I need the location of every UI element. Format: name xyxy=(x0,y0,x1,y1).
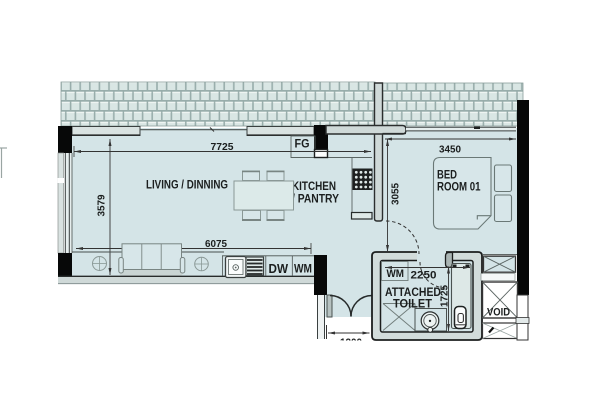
svg-text:1725: 1725 xyxy=(439,285,451,307)
svg-text:6075: 6075 xyxy=(205,238,227,250)
svg-text:KITCHEN: KITCHEN xyxy=(292,181,336,193)
svg-text:/ PANTRY: / PANTRY xyxy=(292,194,339,206)
svg-text:ROOM 01: ROOM 01 xyxy=(437,182,481,194)
svg-text:FG: FG xyxy=(295,139,310,151)
svg-text:BED: BED xyxy=(437,170,457,182)
svg-text:ATTACHED: ATTACHED xyxy=(385,287,441,299)
svg-text:WM: WM xyxy=(294,262,312,276)
svg-text:LIVING / DINNING: LIVING / DINNING xyxy=(146,180,228,192)
svg-text:TOILET: TOILET xyxy=(393,299,432,311)
svg-text:DW: DW xyxy=(269,261,289,276)
svg-text:3055: 3055 xyxy=(390,183,402,205)
svg-text:WM: WM xyxy=(387,268,405,280)
svg-text:3450: 3450 xyxy=(439,144,461,156)
svg-text:VOID: VOID xyxy=(487,307,510,319)
svg-text:3579: 3579 xyxy=(96,194,108,216)
svg-text:7725: 7725 xyxy=(211,141,234,153)
svg-text:2250: 2250 xyxy=(411,270,437,282)
